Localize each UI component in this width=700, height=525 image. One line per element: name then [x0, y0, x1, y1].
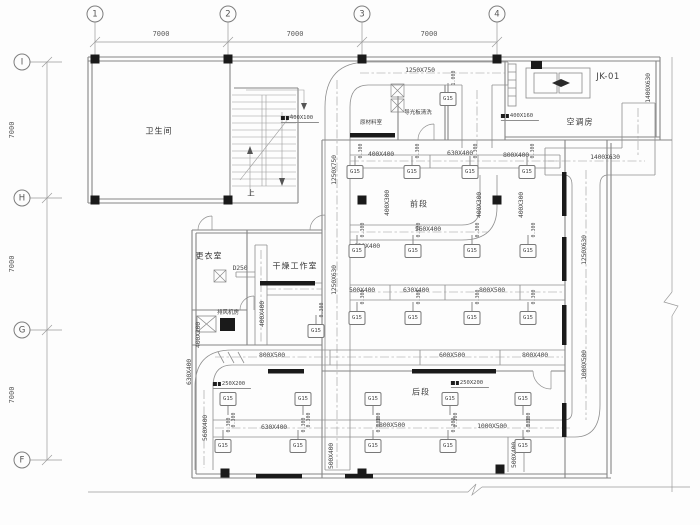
diffuser-box: G15 — [365, 392, 382, 406]
g15-diffuser: G150.300 — [464, 311, 481, 325]
diffuser-box: G15 — [519, 165, 536, 179]
stair-up-label: 上 — [247, 188, 255, 199]
diffuser-stem — [449, 406, 451, 415]
diffuser-box: G15 — [405, 311, 422, 325]
diffuser-flow-label: 0.300 — [358, 143, 364, 158]
diffuser-stem — [469, 156, 471, 165]
diffuser-flow-label: 0.300 — [416, 289, 422, 304]
diffuser-stem — [411, 156, 413, 165]
duct-size-label: D250 — [233, 264, 248, 272]
diffuser-stem — [372, 406, 374, 415]
g15-diffuser: G151.000 — [440, 92, 457, 106]
g15-diffuser: G150.300 — [220, 392, 237, 406]
g15-diffuser: G150.300 — [404, 165, 421, 179]
diffuser-box: G15 — [440, 439, 457, 453]
grid-bubble-F: F — [14, 452, 31, 469]
g15-diffuser: G150.300 — [365, 439, 382, 453]
dimension-text: 7000 — [153, 30, 170, 38]
room-label: 前段 — [410, 199, 428, 210]
g15-diffuser: G150.300 — [440, 439, 457, 453]
g15-diffuser: G150.300 — [405, 311, 422, 325]
diffuser-stem — [522, 406, 524, 415]
diffuser-flow-label: 0.300 — [531, 222, 537, 237]
tag-square — [451, 381, 455, 385]
g15-diffuser: G150.300 — [308, 324, 325, 338]
diffuser-stem — [447, 430, 449, 439]
grid-bubble-4: 4 — [489, 6, 506, 23]
g15-diffuser: G150.300 — [215, 439, 232, 453]
diffuser-flow-label: 0.300 — [526, 417, 532, 432]
duct-size-label: 630X400 — [185, 359, 193, 385]
floor-plan: 1234IHGF700070007000700070007000卫生间原材料室导… — [0, 0, 700, 525]
duct-size-label: 400X300 — [383, 190, 391, 216]
duct-size-label: 1250X630 — [580, 235, 588, 265]
tag-square — [285, 116, 289, 120]
dimension-text: 7000 — [8, 256, 16, 273]
diffuser-flow-label: 0.300 — [531, 289, 537, 304]
diffuser-flow-label: 0.300 — [301, 417, 307, 432]
room-label: 干燥工作室 — [273, 261, 318, 272]
diffuser-box: G15 — [404, 165, 421, 179]
diffuser-box: G15 — [440, 92, 457, 106]
tag-square — [281, 116, 285, 120]
tag-text: 400X160 — [510, 113, 533, 119]
duct-size-label: 1000X500 — [580, 350, 588, 380]
room-label: 更衣室 — [196, 251, 223, 262]
diffuser-stem — [356, 302, 358, 311]
diffuser-box: G15 — [462, 165, 479, 179]
g15-diffuser: G150.300 — [290, 439, 307, 453]
grid-bubble-H: H — [14, 190, 31, 207]
grid-bubble-2: 2 — [220, 6, 237, 23]
duct-stub-tag: 250X200 — [451, 380, 489, 388]
diffuser-box: G15 — [308, 324, 325, 338]
grid-bubble-I: I — [14, 54, 31, 71]
diffuser-box: G15 — [520, 244, 537, 258]
diffuser-flow-label: 0.300 — [530, 143, 536, 158]
g15-diffuser: G150.300 — [519, 165, 536, 179]
duct-size-label: 600X500 — [439, 351, 465, 359]
diffuser-stem — [315, 315, 317, 324]
g15-diffuser: G150.300 — [405, 244, 422, 258]
diffuser-stem — [527, 302, 529, 311]
diffuser-stem — [297, 430, 299, 439]
duct-size-label: 500X400 — [327, 443, 335, 469]
diffuser-box: G15 — [464, 311, 481, 325]
dimension-text: 7000 — [8, 387, 16, 404]
diffuser-stem — [526, 156, 528, 165]
diffuser-stem — [356, 235, 358, 244]
room-label: 卫生间 — [146, 126, 173, 137]
diffuser-box: G15 — [220, 392, 237, 406]
diffuser-stem — [471, 302, 473, 311]
tag-text: 250X200 — [460, 380, 483, 386]
dimension-text: 7000 — [8, 122, 16, 139]
diffuser-box: G15 — [349, 244, 366, 258]
duct-stub-tag: 400X160 — [501, 113, 539, 121]
duct-size-label: 630X400 — [261, 423, 287, 431]
diffuser-box: G15 — [215, 439, 232, 453]
diffuser-flow-label: 0.300 — [475, 289, 481, 304]
diffuser-stem — [471, 235, 473, 244]
diffuser-flow-label: 0.300 — [475, 222, 481, 237]
duct-size-label: 1400X630 — [644, 73, 652, 103]
diffuser-flow-label: 0.300 — [416, 222, 422, 237]
diffuser-box: G15 — [347, 165, 364, 179]
grid-bubble-1: 1 — [87, 6, 104, 23]
g15-diffuser: G150.300 — [464, 244, 481, 258]
diffuser-flow-label: 0.300 — [360, 289, 366, 304]
tag-square — [213, 382, 217, 386]
diffuser-stem — [412, 302, 414, 311]
diffuser-stem — [412, 235, 414, 244]
diffuser-stem — [302, 406, 304, 415]
dimension-text: 7000 — [421, 30, 438, 38]
duct-size-label: 800X400 — [503, 151, 529, 159]
g15-diffuser: G150.300 — [520, 311, 537, 325]
duct-stub-tag: 400X100 — [281, 115, 319, 123]
duct-size-label: 800X500 — [259, 351, 285, 359]
diffuser-stem — [222, 430, 224, 439]
g15-diffuser: G150.300 — [347, 165, 364, 179]
duct-size-label: 1400X630 — [590, 153, 620, 161]
diffuser-flow-label: 0.300 — [473, 143, 479, 158]
tag-square — [217, 382, 221, 386]
room-label: 排风机房 — [217, 308, 239, 316]
diffuser-box: G15 — [295, 392, 312, 406]
diffuser-flow-label: 1.000 — [451, 70, 457, 85]
label-overlay: 1234IHGF700070007000700070007000卫生间原材料室导… — [0, 0, 700, 525]
duct-size-label: 400X300 — [517, 192, 525, 218]
diffuser-stem — [372, 430, 374, 439]
diffuser-flow-label: 0.300 — [319, 302, 325, 317]
diffuser-stem — [227, 406, 229, 415]
duct-size-label: 800X400 — [522, 351, 548, 359]
diffuser-stem — [447, 83, 449, 92]
g15-diffuser: G150.300 — [515, 439, 532, 453]
diffuser-box: G15 — [365, 439, 382, 453]
diffuser-stem — [354, 156, 356, 165]
diffuser-flow-label: 0.300 — [360, 222, 366, 237]
duct-size-label: 400X300 — [475, 192, 483, 218]
diffuser-box: G15 — [405, 244, 422, 258]
grid-bubble-G: G — [14, 322, 31, 339]
duct-size-label: 1250X750 — [330, 155, 338, 185]
diffuser-flow-label: 0.300 — [451, 417, 457, 432]
duct-size-label: 1000X500 — [477, 422, 507, 430]
tag-text: 400X100 — [290, 115, 313, 121]
diffuser-box: G15 — [520, 311, 537, 325]
duct-size-label: 800X500 — [479, 286, 505, 294]
duct-stub-tag: 250X200 — [213, 381, 251, 389]
diffuser-box: G15 — [515, 392, 532, 406]
diffuser-stem — [527, 235, 529, 244]
g15-diffuser: G150.300 — [349, 311, 366, 325]
room-label: 空调房 — [567, 117, 594, 128]
g15-diffuser: G150.300 — [515, 392, 532, 406]
duct-size-label: 1250X630 — [330, 265, 338, 295]
g15-diffuser: G150.300 — [349, 244, 366, 258]
tag-text: 250X200 — [222, 381, 245, 387]
duct-size-label: 400X400 — [258, 301, 266, 327]
diffuser-flow-label: 0.300 — [226, 417, 232, 432]
diffuser-flow-label: 0.300 — [415, 143, 421, 158]
diffuser-flow-label: 0.300 — [376, 417, 382, 432]
room-label: 原材料室 — [360, 118, 382, 126]
tag-square — [501, 114, 505, 118]
g15-diffuser: G150.300 — [462, 165, 479, 179]
grid-bubble-3: 3 — [354, 6, 371, 23]
g15-diffuser: G150.300 — [520, 244, 537, 258]
dimension-text: 7000 — [287, 30, 304, 38]
duct-size-label: 560X400 — [201, 415, 209, 441]
diffuser-box: G15 — [515, 439, 532, 453]
tag-square — [505, 114, 509, 118]
g15-diffuser: G150.300 — [442, 392, 459, 406]
diffuser-box: G15 — [290, 439, 307, 453]
room-label: 导光板清洗 — [404, 108, 432, 116]
diffuser-box: G15 — [349, 311, 366, 325]
diffuser-box: G15 — [442, 392, 459, 406]
diffuser-box: G15 — [464, 244, 481, 258]
diffuser-stem — [522, 430, 524, 439]
tag-square — [455, 381, 459, 385]
duct-size-label: 400X200 — [194, 322, 202, 348]
g15-diffuser: G150.300 — [295, 392, 312, 406]
g15-diffuser: G150.300 — [365, 392, 382, 406]
duct-size-label: 1250X750 — [405, 66, 435, 74]
duct-size-label: 400X400 — [368, 150, 394, 158]
duct-size-label: 800X500 — [379, 421, 405, 429]
ahu-tag-label: JK-01 — [596, 72, 620, 82]
room-label: 后段 — [412, 387, 430, 398]
